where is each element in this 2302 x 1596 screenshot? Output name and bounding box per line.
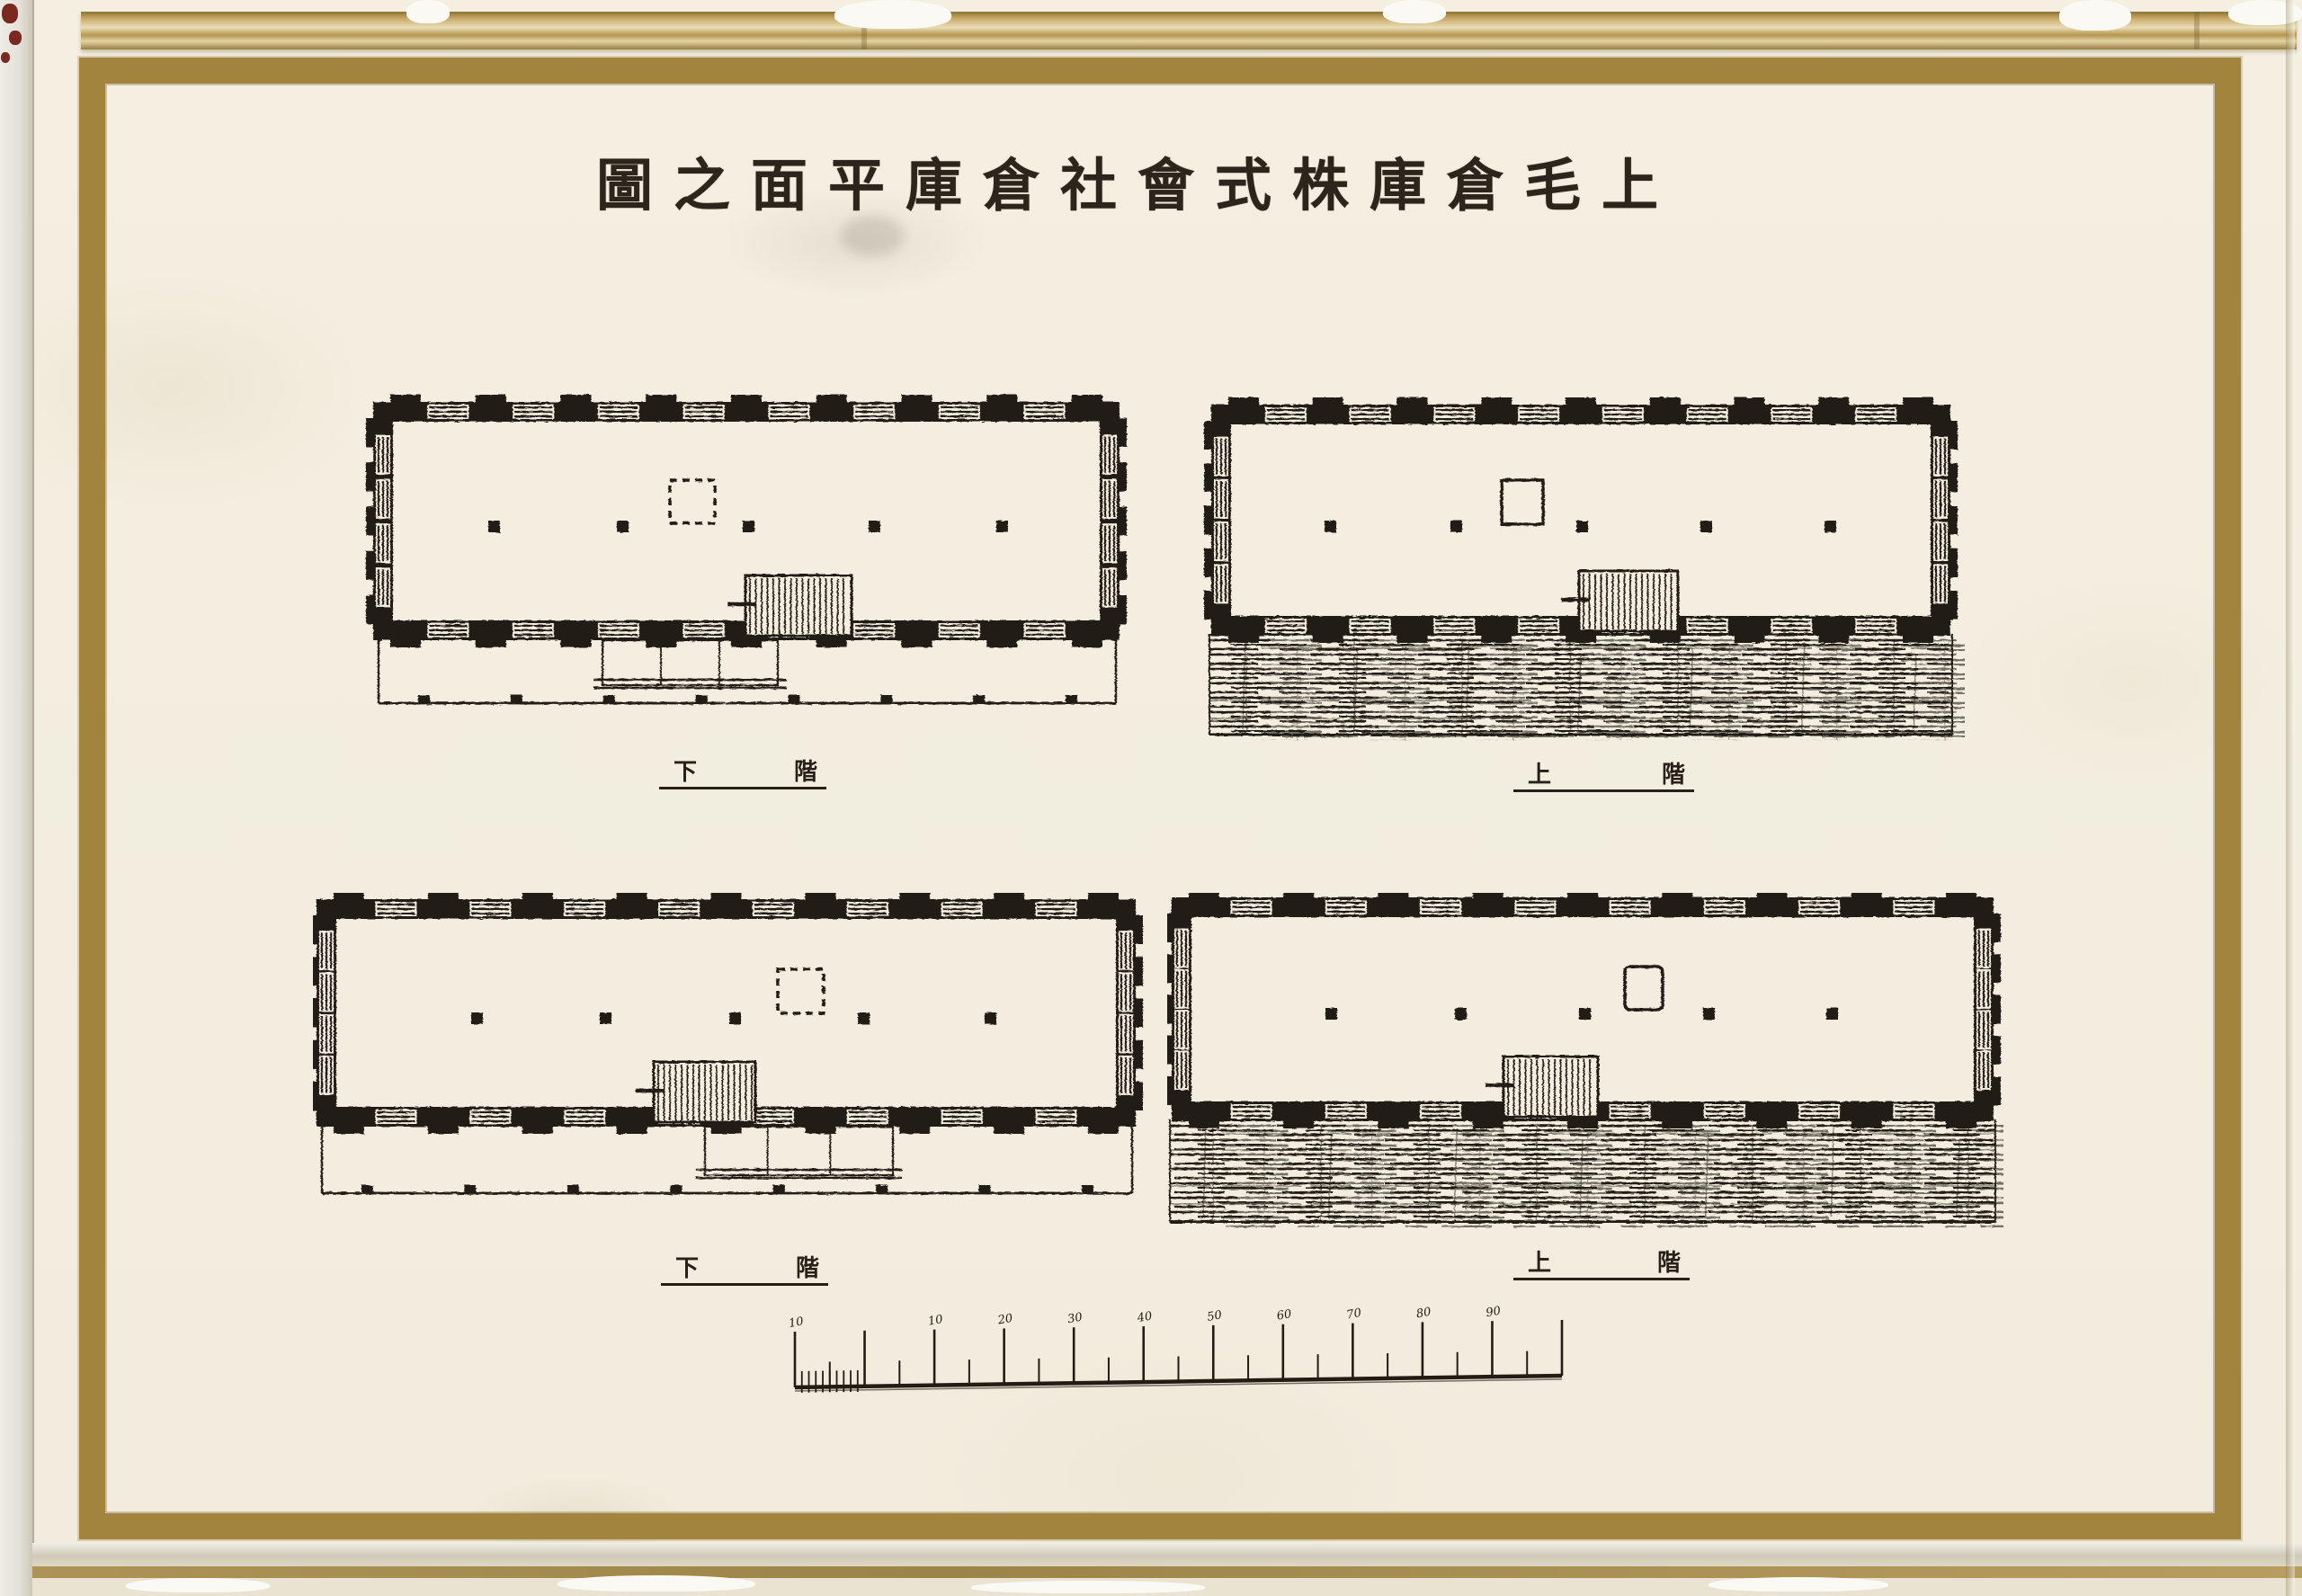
smudge-stain [841,216,904,256]
scale-tick-label: 70 [1345,1306,1362,1323]
floor-label-char: 下 [674,761,697,784]
torn-paper-bit [834,0,951,29]
page-crease [2194,12,2199,49]
floor-label-char: 上 [1528,1252,1551,1275]
scanned-page: 圖之面平庫倉社會式株庫倉毛上 下 階 上 階 下 階 上 階 101020304… [0,0,2302,1596]
floor-label-ground-left: 下 階 [659,761,826,789]
floor-label-ground-left-2: 下 階 [661,1257,828,1286]
scale-tick-label: 80 [1415,1306,1432,1322]
scale-tick-label: 60 [1276,1307,1293,1324]
binding-stain [9,31,22,45]
scale-tick-label: 10 [927,1313,944,1329]
book-left-edge [0,0,34,1596]
scale-tick-label: 40 [1136,1309,1154,1325]
scale-tick-label: 20 [996,1312,1014,1328]
torn-paper-bit [1383,0,1446,23]
page-title: 圖之面平庫倉社會式株庫倉毛上 [558,140,1718,222]
torn-paper-bit [558,1575,755,1592]
floor-label-upper-right: 上 階 [1513,763,1694,792]
upper-left-plan [364,393,1138,711]
torn-paper-bit [971,1581,1205,1593]
floor-label-char: 階 [796,1257,819,1280]
torn-paper-bit [406,0,450,23]
drawing-scale-bar: 10102030405060708090 [769,1304,1587,1406]
floor-label-char: 下 [675,1257,699,1280]
scale-tick-label: 30 [1066,1311,1084,1327]
torn-paper-bit [126,1578,270,1592]
upper-right-plan [1200,393,1965,756]
scale-tick-label: 90 [1485,1305,1502,1321]
scale-tick-label: 50 [1206,1308,1223,1324]
floor-label-upper-right-2: 上 階 [1513,1252,1690,1280]
torn-paper-bit [2059,0,2131,31]
floor-label-char: 階 [1657,1252,1681,1275]
scale-tick-label: 10 [788,1315,805,1331]
bottom-page-edge-light [32,1543,2302,1566]
floor-label-char: 階 [1662,763,1685,787]
lower-left-plan [313,893,1145,1207]
binding-stain [2,4,18,23]
lower-right-plan [1167,893,2003,1234]
torn-paper-bit [1709,1577,1888,1592]
floor-label-char: 上 [1528,763,1551,787]
floor-label-char: 階 [794,761,817,784]
bottom-page-edge-gilt [32,1566,2302,1578]
page-fold-crease [2286,0,2295,1596]
binding-stain [1,52,10,63]
